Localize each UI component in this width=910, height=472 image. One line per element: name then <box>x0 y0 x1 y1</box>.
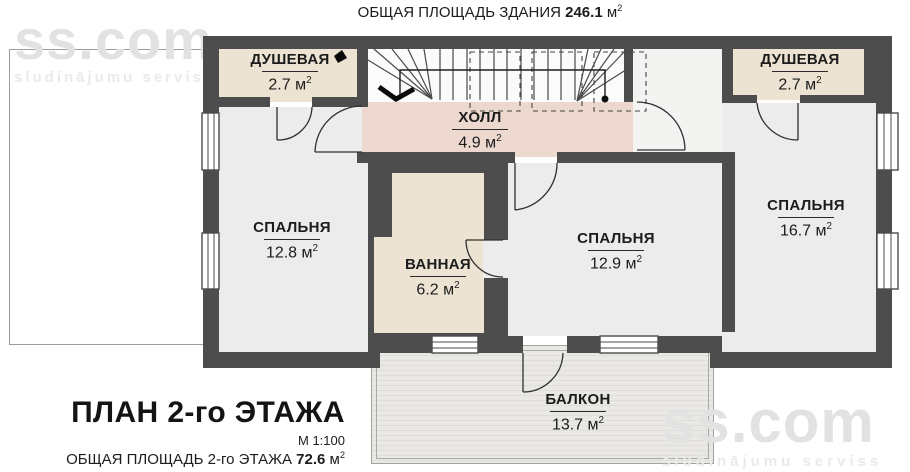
room-label-bathroom: ВАННАЯ 6.2 м2 <box>376 256 500 300</box>
plan-scale: М 1:100 <box>55 433 345 448</box>
total-area-value: 246.1 <box>565 4 603 21</box>
floor-plan-page: ss.com sludinājumu serviss ss.com sludin… <box>0 0 910 472</box>
window-left-2 <box>202 233 219 289</box>
building-total-area-title: ОБЩАЯ ПЛОЩАДЬ ЗДАНИЯ 246.1 м2 <box>280 3 700 21</box>
room-divider <box>452 129 508 130</box>
door-balcony <box>523 353 563 392</box>
room-area-value: 6.2 м2 <box>376 280 500 300</box>
room-name: СПАЛЬНЯ <box>220 219 364 236</box>
window-bottom-bathroom <box>432 336 478 353</box>
room-name: СПАЛЬНЯ <box>734 197 878 214</box>
room-area-value: 4.9 м2 <box>418 133 542 153</box>
window-right-2 <box>877 233 898 289</box>
room-divider <box>264 239 320 240</box>
room-area-value: 16.7 м2 <box>734 221 878 241</box>
area-unit: м2 <box>330 451 345 468</box>
room-divider <box>262 71 318 72</box>
room-label-bedroom-middle: СПАЛЬНЯ 12.9 м2 <box>544 230 688 274</box>
room-divider <box>778 217 834 218</box>
room-label-balcony: БАЛКОН 13.7 м2 <box>506 391 650 435</box>
window-right-1 <box>877 113 898 170</box>
room-label-shower-right: ДУШЕВАЯ 2.7 м2 <box>740 51 860 95</box>
room-name: ВАННАЯ <box>376 256 500 273</box>
window-left-1 <box>202 113 219 170</box>
plan-title: ПЛАН 2-го ЭТАЖА <box>55 396 345 430</box>
room-divider <box>550 411 606 412</box>
window-bottom-bedroom-middle <box>600 336 658 353</box>
total-area-label: ОБЩАЯ ПЛОЩАДЬ ЗДАНИЯ <box>358 4 561 21</box>
room-divider <box>410 276 466 277</box>
room-area-value: 12.8 м2 <box>220 243 364 263</box>
room-divider <box>772 71 828 72</box>
room-label-hall: ХОЛЛ 4.9 м2 <box>418 109 542 153</box>
room-area-value: 12.9 м2 <box>544 254 688 274</box>
room-name: ХОЛЛ <box>418 109 542 126</box>
room-area-value: 2.7 м2 <box>230 75 350 95</box>
floor-area-value: 72.6 <box>296 451 325 468</box>
floor-total-area: ОБЩАЯ ПЛОЩАДЬ 2-го ЭТАЖА 72.6 м2 <box>55 450 345 468</box>
room-area-value: 13.7 м2 <box>506 415 650 435</box>
room-divider <box>588 250 644 251</box>
room-area-value: 2.7 м2 <box>740 75 860 95</box>
plan-footer: ПЛАН 2-го ЭТАЖА М 1:100 ОБЩАЯ ПЛОЩАДЬ 2-… <box>55 396 345 468</box>
room-name: СПАЛЬНЯ <box>544 230 688 247</box>
stair-walk-line-end-dot <box>602 96 609 103</box>
area-unit: м2 <box>607 4 622 21</box>
room-label-shower-left: ДУШЕВАЯ 2.7 м2 <box>230 51 350 95</box>
room-name: БАЛКОН <box>506 391 650 408</box>
room-label-bedroom-left: СПАЛЬНЯ 12.8 м2 <box>220 219 364 263</box>
room-label-bedroom-right: СПАЛЬНЯ 16.7 м2 <box>734 197 878 241</box>
room-name: ДУШЕВАЯ <box>230 51 350 68</box>
room-name: ДУШЕВАЯ <box>740 51 860 68</box>
